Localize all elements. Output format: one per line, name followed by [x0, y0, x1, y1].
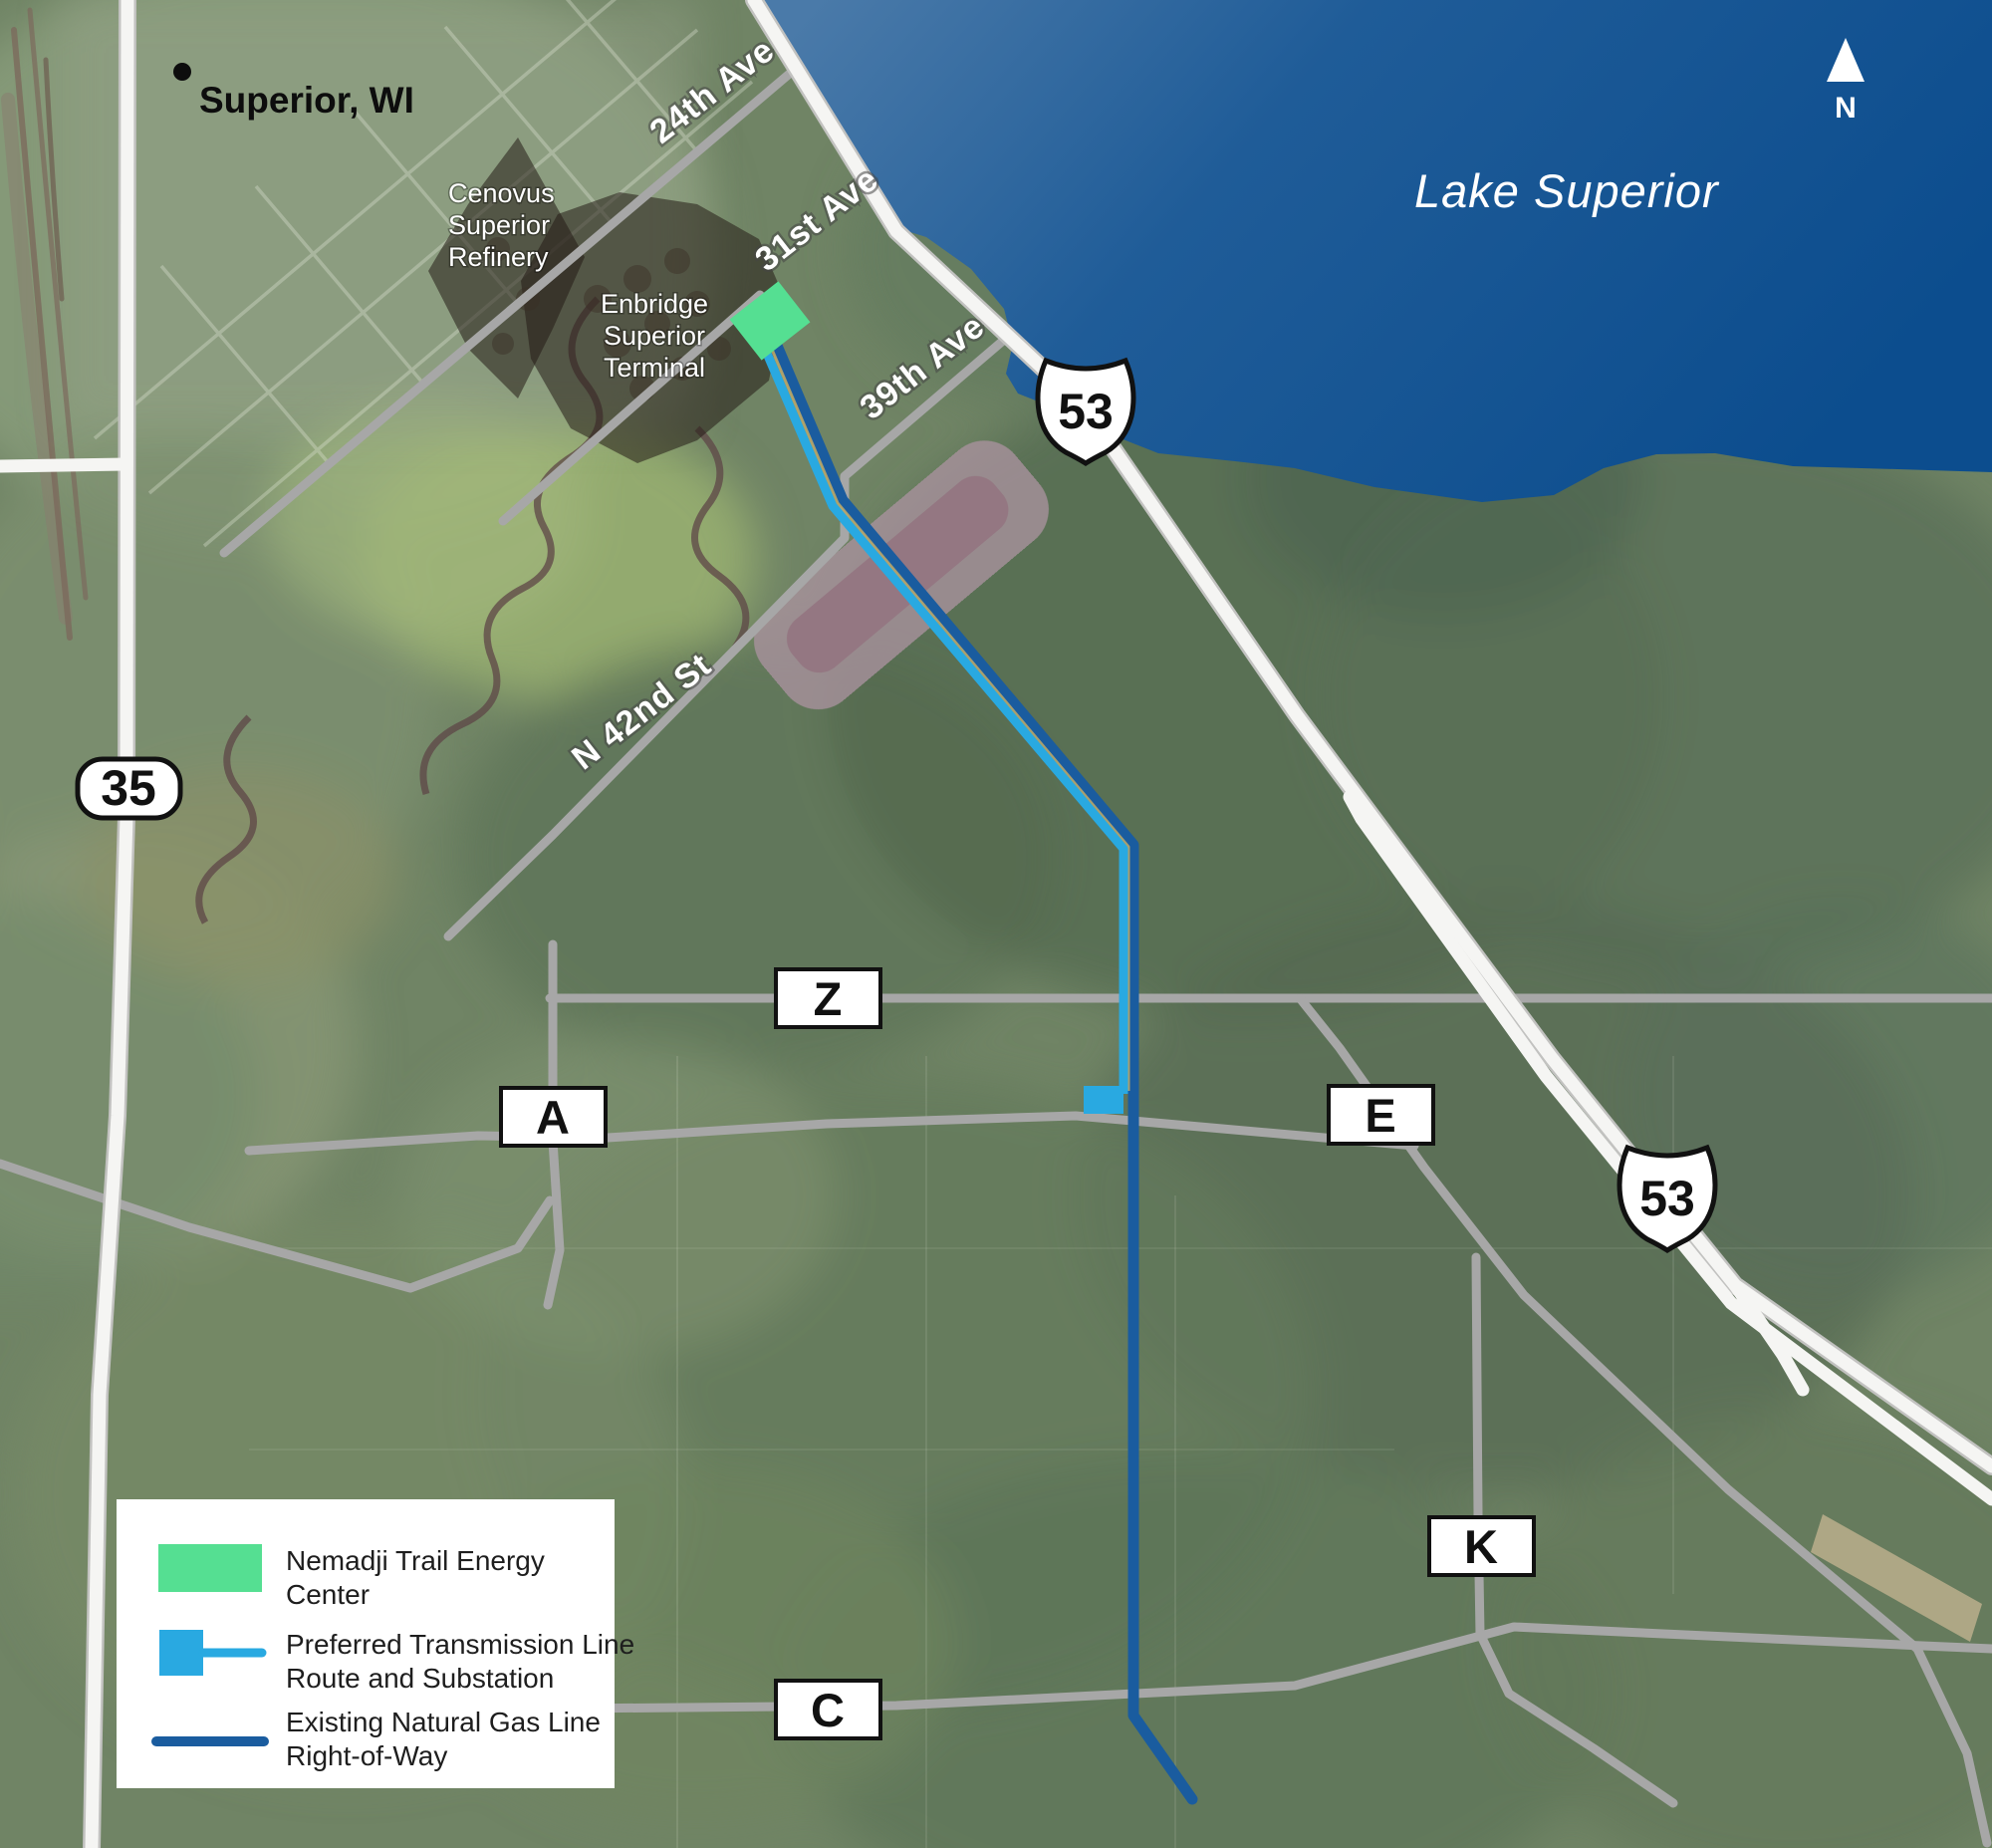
- legend-item3-line1: Existing Natural Gas Line: [286, 1707, 601, 1737]
- county-a-letter: A: [536, 1091, 570, 1144]
- north-arrow-n: N: [1835, 92, 1857, 125]
- city-name: Superior, WI: [199, 80, 414, 121]
- county-road-k: K: [1429, 1517, 1534, 1575]
- county-k-letter: K: [1464, 1520, 1498, 1573]
- county-road-c: C: [776, 1681, 880, 1738]
- legend-item1-line2: Center: [286, 1579, 370, 1610]
- us53-shield-number: 53: [1058, 384, 1114, 439]
- county-c-letter: C: [811, 1684, 845, 1736]
- enbridge-label-line1: Enbridge: [601, 289, 708, 319]
- legend-item2-line1: Preferred Transmission Line: [286, 1629, 634, 1660]
- legend-substation-swatch: [159, 1630, 203, 1676]
- legend: Nemadji Trail Energy Center Preferred Tr…: [117, 1499, 634, 1788]
- us53-shield-number-2: 53: [1639, 1171, 1695, 1226]
- wi35-shield: 35: [78, 759, 180, 818]
- cenovus-label-line3: Refinery: [448, 242, 549, 272]
- cenovus-label-line2: Superior: [448, 210, 550, 240]
- legend-energy-center-swatch: [158, 1544, 262, 1592]
- county-road-z: Z: [776, 969, 880, 1027]
- county-z-letter: Z: [814, 972, 843, 1025]
- county-road-a: A: [501, 1088, 606, 1146]
- wi35-shield-number: 35: [101, 760, 156, 816]
- enbridge-label-line3: Terminal: [604, 353, 705, 383]
- county-road-e: E: [1329, 1086, 1433, 1144]
- county-e-letter: E: [1365, 1089, 1395, 1142]
- enbridge-label-line2: Superior: [604, 321, 705, 351]
- legend-item3-line2: Right-of-Way: [286, 1740, 447, 1771]
- map-canvas: 24th Ave 31st Ave 39th Ave N 42nd St Cen…: [0, 0, 1992, 1848]
- project-map: 24th Ave 31st Ave 39th Ave N 42nd St Cen…: [0, 0, 1992, 1848]
- city-dot: [173, 63, 191, 81]
- cenovus-label-line1: Cenovus: [448, 178, 555, 208]
- substation-marker: [1084, 1086, 1123, 1114]
- legend-item2-line2: Route and Substation: [286, 1663, 554, 1694]
- lake-superior-label: Lake Superior: [1414, 164, 1720, 217]
- legend-item1-line1: Nemadji Trail Energy: [286, 1545, 545, 1576]
